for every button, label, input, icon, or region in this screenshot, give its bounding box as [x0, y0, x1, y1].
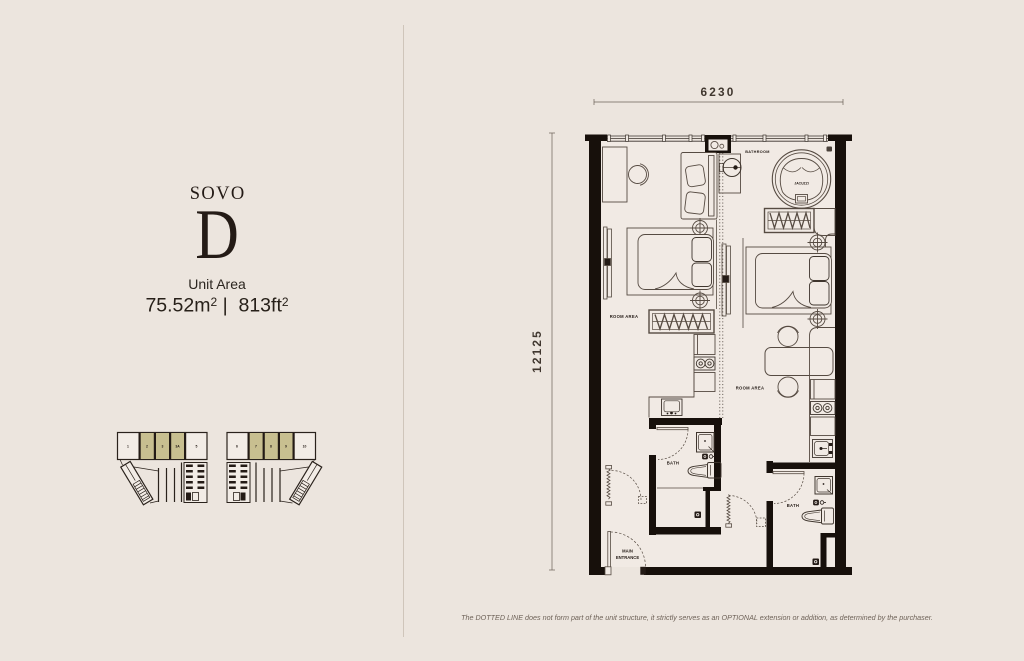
- svg-text:BATHROOM: BATHROOM: [745, 150, 769, 154]
- svg-text:12125: 12125: [530, 329, 544, 373]
- svg-text:9: 9: [285, 445, 287, 449]
- svg-text:ENTRANCE: ENTRANCE: [616, 555, 639, 560]
- svg-text:JACUZZI: JACUZZI: [794, 182, 808, 186]
- svg-text:10: 10: [303, 445, 307, 449]
- svg-text:MAIN: MAIN: [622, 549, 633, 554]
- svg-text:ROOM AREA: ROOM AREA: [610, 314, 639, 319]
- svg-text:6: 6: [236, 445, 238, 449]
- svg-text:3A: 3A: [175, 445, 180, 449]
- svg-text:6230: 6230: [700, 85, 735, 99]
- svg-text:7: 7: [255, 445, 257, 449]
- svg-text:BATH: BATH: [787, 503, 800, 508]
- svg-text:3: 3: [162, 445, 164, 449]
- svg-text:2: 2: [146, 445, 148, 449]
- svg-text:1: 1: [127, 445, 129, 449]
- svg-text:5: 5: [196, 445, 198, 449]
- svg-text:BATH: BATH: [667, 461, 680, 466]
- svg-text:ROOM AREA: ROOM AREA: [736, 386, 765, 391]
- svg-text:8: 8: [270, 445, 272, 449]
